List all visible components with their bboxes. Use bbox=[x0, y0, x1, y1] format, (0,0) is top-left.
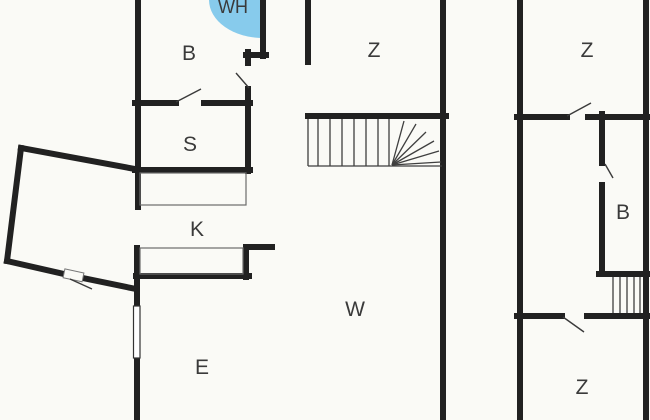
window-left-wall bbox=[134, 306, 141, 358]
room-label-bathroom-right: B bbox=[616, 201, 630, 224]
room-label-living-room: W bbox=[345, 298, 365, 321]
room-label-kitchen: K bbox=[190, 218, 204, 241]
room-label-dining-room: E bbox=[195, 356, 209, 379]
room-label-bathroom-main: B bbox=[182, 42, 196, 65]
floor-plan-canvas: WH B Z Z S K B W E Z bbox=[0, 0, 650, 420]
room-label-water-heater: WH bbox=[218, 0, 248, 17]
room-label-bedroom-mid-top: Z bbox=[368, 39, 381, 62]
plan-background bbox=[0, 0, 650, 420]
room-label-bedroom-right-top: Z bbox=[581, 39, 594, 62]
room-label-storage: S bbox=[183, 133, 197, 156]
floor-plan: WH B Z Z S K B W E Z bbox=[0, 0, 650, 420]
room-label-bedroom-right-bottom: Z bbox=[576, 376, 589, 399]
